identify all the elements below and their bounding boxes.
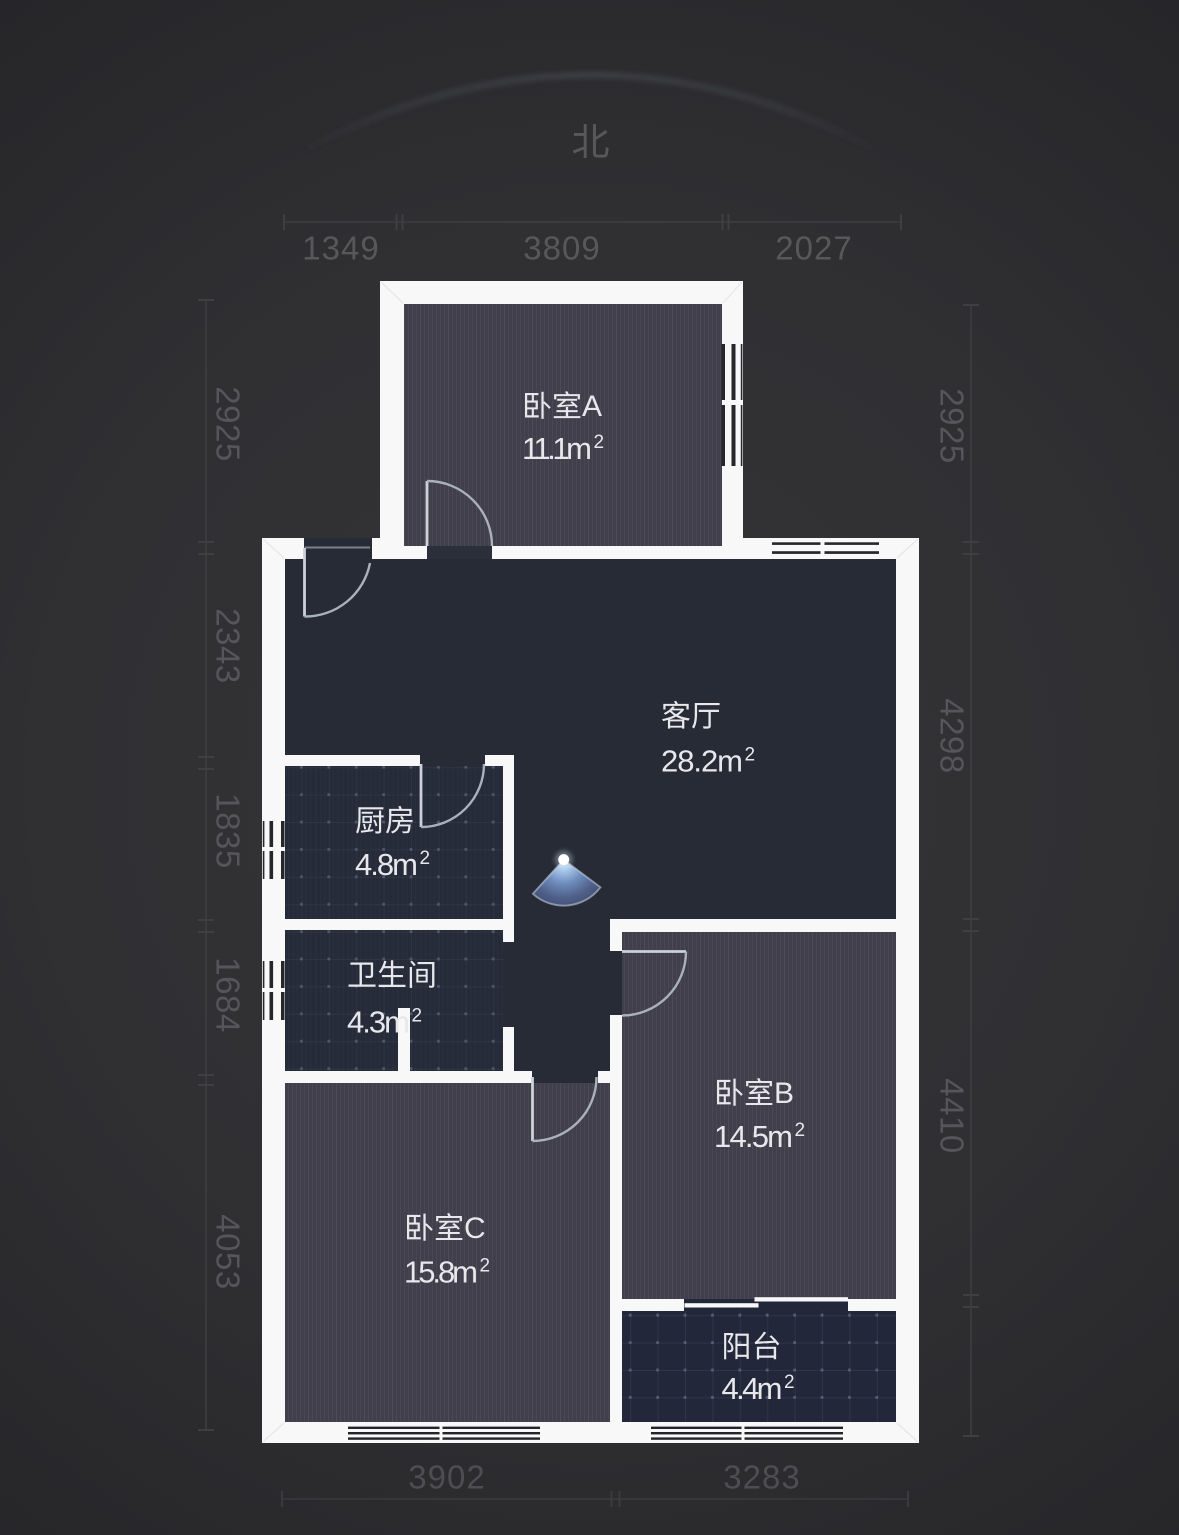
svg-text:3902: 3902: [408, 1459, 485, 1496]
svg-text:3283: 3283: [723, 1459, 800, 1496]
svg-text:11.1m: 11.1m: [522, 431, 592, 466]
svg-text:2: 2: [784, 1372, 795, 1393]
svg-text:14.5m: 14.5m: [714, 1119, 793, 1154]
svg-text:4.8m: 4.8m: [355, 847, 418, 882]
svg-text:B: B: [774, 1077, 794, 1110]
svg-text:1684: 1684: [210, 957, 247, 1032]
svg-text:4298: 4298: [934, 698, 971, 773]
svg-text:A: A: [582, 390, 602, 423]
svg-text:4053: 4053: [210, 1214, 247, 1289]
svg-text:1835: 1835: [210, 793, 247, 868]
svg-text:2343: 2343: [210, 608, 247, 683]
svg-text:15.8m: 15.8m: [404, 1254, 478, 1289]
svg-text:4.3m: 4.3m: [347, 1004, 410, 1039]
svg-text:2027: 2027: [775, 230, 852, 267]
svg-text:2: 2: [412, 1006, 423, 1027]
svg-text:2: 2: [795, 1120, 806, 1141]
svg-text:2: 2: [594, 432, 605, 453]
svg-text:3809: 3809: [523, 230, 600, 267]
svg-text:28.2m: 28.2m: [661, 743, 743, 778]
svg-text:2925: 2925: [210, 386, 247, 461]
svg-text:2: 2: [480, 1256, 491, 1277]
svg-text:2925: 2925: [934, 388, 971, 463]
svg-text:2: 2: [420, 848, 431, 869]
svg-text:4410: 4410: [934, 1078, 971, 1153]
svg-text:1349: 1349: [302, 230, 379, 267]
svg-text:4.4m: 4.4m: [722, 1371, 783, 1406]
svg-text:2: 2: [745, 745, 756, 766]
svg-text:C: C: [464, 1212, 486, 1245]
